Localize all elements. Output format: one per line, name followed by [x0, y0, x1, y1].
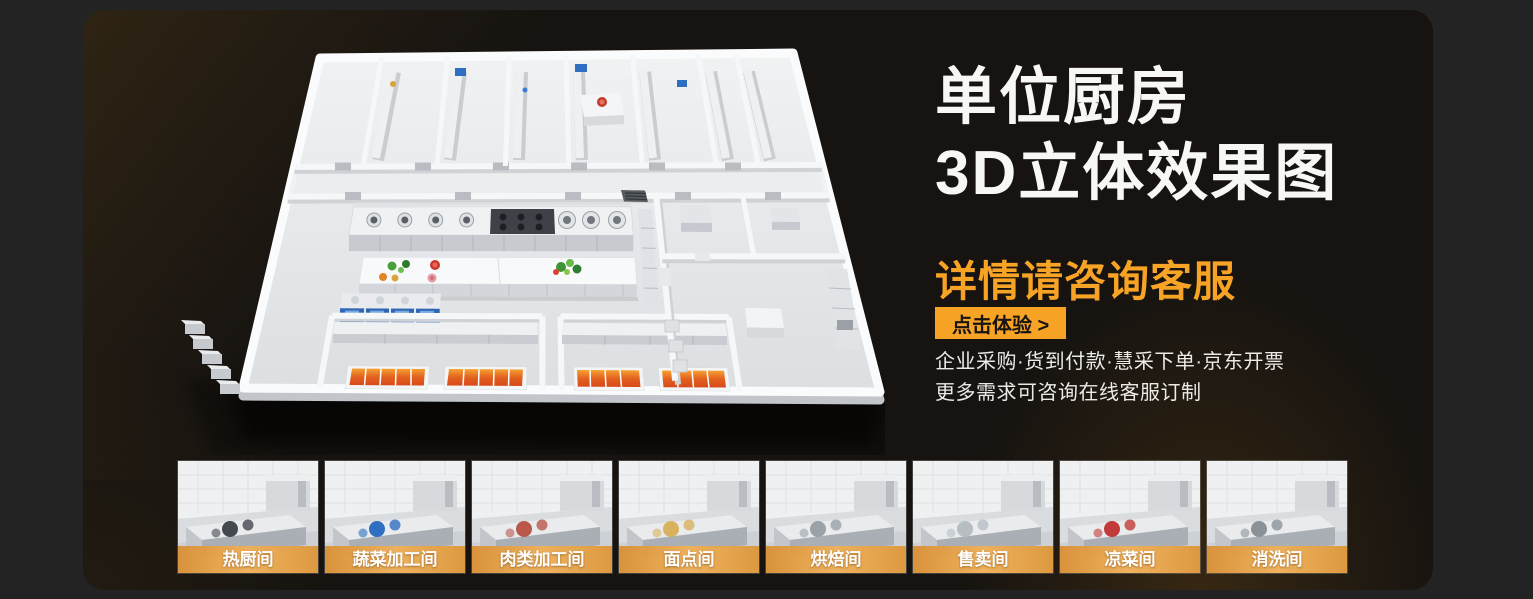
description: 企业采购·货到付款·慧采下单·京东开票 更多需求可咨询在线客服订制: [935, 347, 1284, 409]
gallery-item-cold-dish-room[interactable]: 凉菜间: [1060, 461, 1200, 573]
thumb-label: 热厨间: [178, 546, 318, 573]
description-line1: 企业采购·货到付款·慧采下单·京东开票: [935, 347, 1284, 378]
corridor: [288, 163, 830, 201]
gallery-item-hot-kitchen[interactable]: 热厨间: [178, 461, 318, 573]
gallery-item-meat-processing[interactable]: 肉类加工间: [472, 461, 612, 573]
thumb-label: 肉类加工间: [472, 546, 612, 573]
thumb-label: 售卖间: [913, 546, 1053, 573]
thumb-label: 面点间: [619, 546, 759, 573]
gallery-item-pastry-room[interactable]: 面点间: [619, 461, 759, 573]
page-background: { "banner": { "title_line1": "单位厨房", "ti…: [0, 0, 1533, 599]
gallery-item-baking-room[interactable]: 烘焙间: [766, 461, 906, 573]
headline-line2: 3D立体效果图: [935, 136, 1338, 212]
thumb-label: 消洗间: [1207, 546, 1347, 573]
headline: 单位厨房 3D立体效果图: [935, 60, 1338, 212]
cta-button[interactable]: 点击体验 >: [935, 307, 1066, 339]
subtitle: 详情请咨询客服: [935, 248, 1236, 309]
promo-banner: 单位厨房 3D立体效果图 详情请咨询客服 点击体验 > 企业采购·货到付款·慧采…: [83, 10, 1433, 590]
thumb-label: 凉菜间: [1060, 546, 1200, 573]
cook-line: [349, 204, 633, 251]
gallery-item-washing-room[interactable]: 消洗间: [1207, 461, 1347, 573]
gallery-item-vegetable-processing[interactable]: 蔬菜加工间: [325, 461, 465, 573]
room-gallery: 热厨间 蔬菜加工间 肉类加工间 面点间 烘焙间 售卖间 凉菜间 消洗间: [178, 461, 1347, 573]
description-line2: 更多需求可咨询在线客服订制: [935, 378, 1284, 409]
thumb-label: 烘焙间: [766, 546, 906, 573]
headline-line1: 单位厨房: [935, 60, 1338, 136]
thumb-label: 蔬菜加工间: [325, 546, 465, 573]
steamer-row: [339, 293, 441, 327]
gallery-item-sales-room[interactable]: 售卖间: [913, 461, 1053, 573]
kitchen-floorplan-3d-illustration: [165, 15, 885, 455]
